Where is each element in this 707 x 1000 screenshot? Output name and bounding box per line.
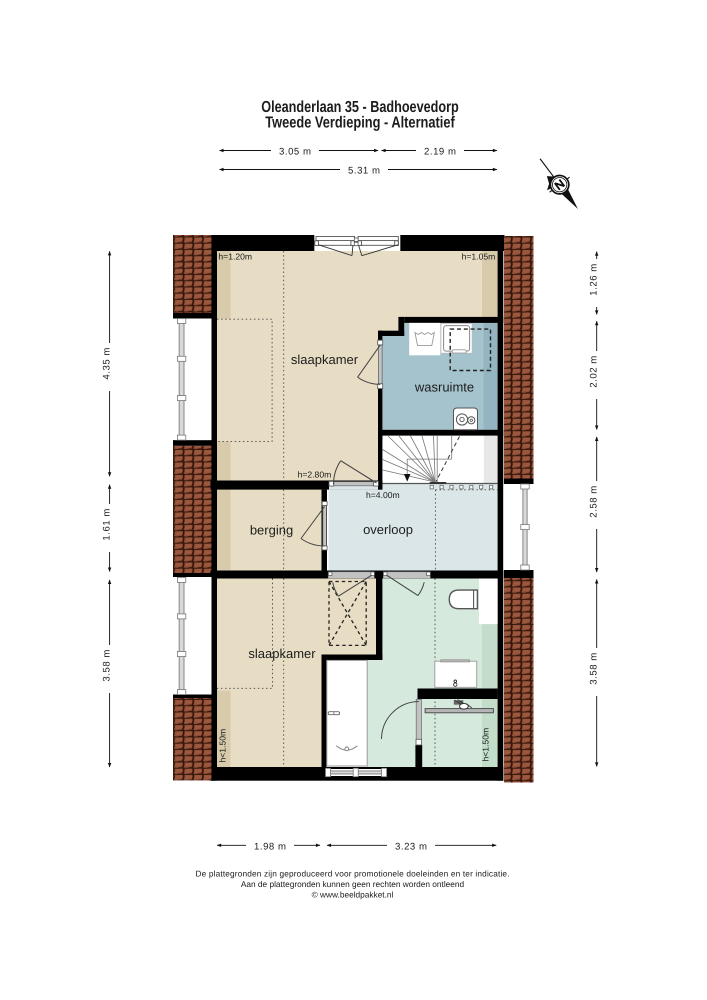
svg-text:De plattegronden zijn geproduc: De plattegronden zijn geproduceerd voor … xyxy=(196,869,510,879)
svg-text:© www.beeldpakket.nl: © www.beeldpakket.nl xyxy=(312,890,394,900)
svg-text:2.19 m: 2.19 m xyxy=(424,147,456,158)
svg-text:3.05 m: 3.05 m xyxy=(279,147,311,158)
svg-text:h<1.50m: h<1.50m xyxy=(218,729,228,763)
svg-text:Aan de plattegronden kunnen ge: Aan de plattegronden kunnen geen rechten… xyxy=(241,879,465,889)
svg-text:h=2.80m: h=2.80m xyxy=(298,469,332,479)
svg-text:Tweede Verdieping - Alternatie: Tweede Verdieping - Alternatief xyxy=(265,115,455,132)
svg-text:slaapkamer: slaapkamer xyxy=(291,352,359,367)
svg-text:3.58 m: 3.58 m xyxy=(102,650,113,682)
svg-text:4.35 m: 4.35 m xyxy=(102,348,113,380)
svg-text:1.98 m: 1.98 m xyxy=(254,841,286,852)
svg-text:2.58 m: 2.58 m xyxy=(589,486,600,518)
svg-text:wasruimte: wasruimte xyxy=(414,380,474,395)
svg-text:2.02 m: 2.02 m xyxy=(589,356,600,388)
svg-text:1.26 m: 1.26 m xyxy=(589,264,600,296)
svg-text:1.61 m: 1.61 m xyxy=(102,509,113,541)
svg-text:slaapkamer: slaapkamer xyxy=(248,646,316,661)
svg-text:Oleanderlaan 35 - Badhoevedorp: Oleanderlaan 35 - Badhoevedorp xyxy=(261,99,459,116)
svg-text:3.23 m: 3.23 m xyxy=(395,841,427,852)
svg-text:5.31 m: 5.31 m xyxy=(348,166,380,177)
svg-text:3.58 m: 3.58 m xyxy=(589,653,600,685)
svg-text:berging: berging xyxy=(250,523,293,538)
svg-text:h=4.00m: h=4.00m xyxy=(366,490,400,500)
svg-text:h<1.50m: h<1.50m xyxy=(481,728,491,762)
svg-text:h=1.20m: h=1.20m xyxy=(218,252,252,262)
svg-text:h=1.05m: h=1.05m xyxy=(462,252,496,262)
svg-text:overloop: overloop xyxy=(363,522,413,537)
